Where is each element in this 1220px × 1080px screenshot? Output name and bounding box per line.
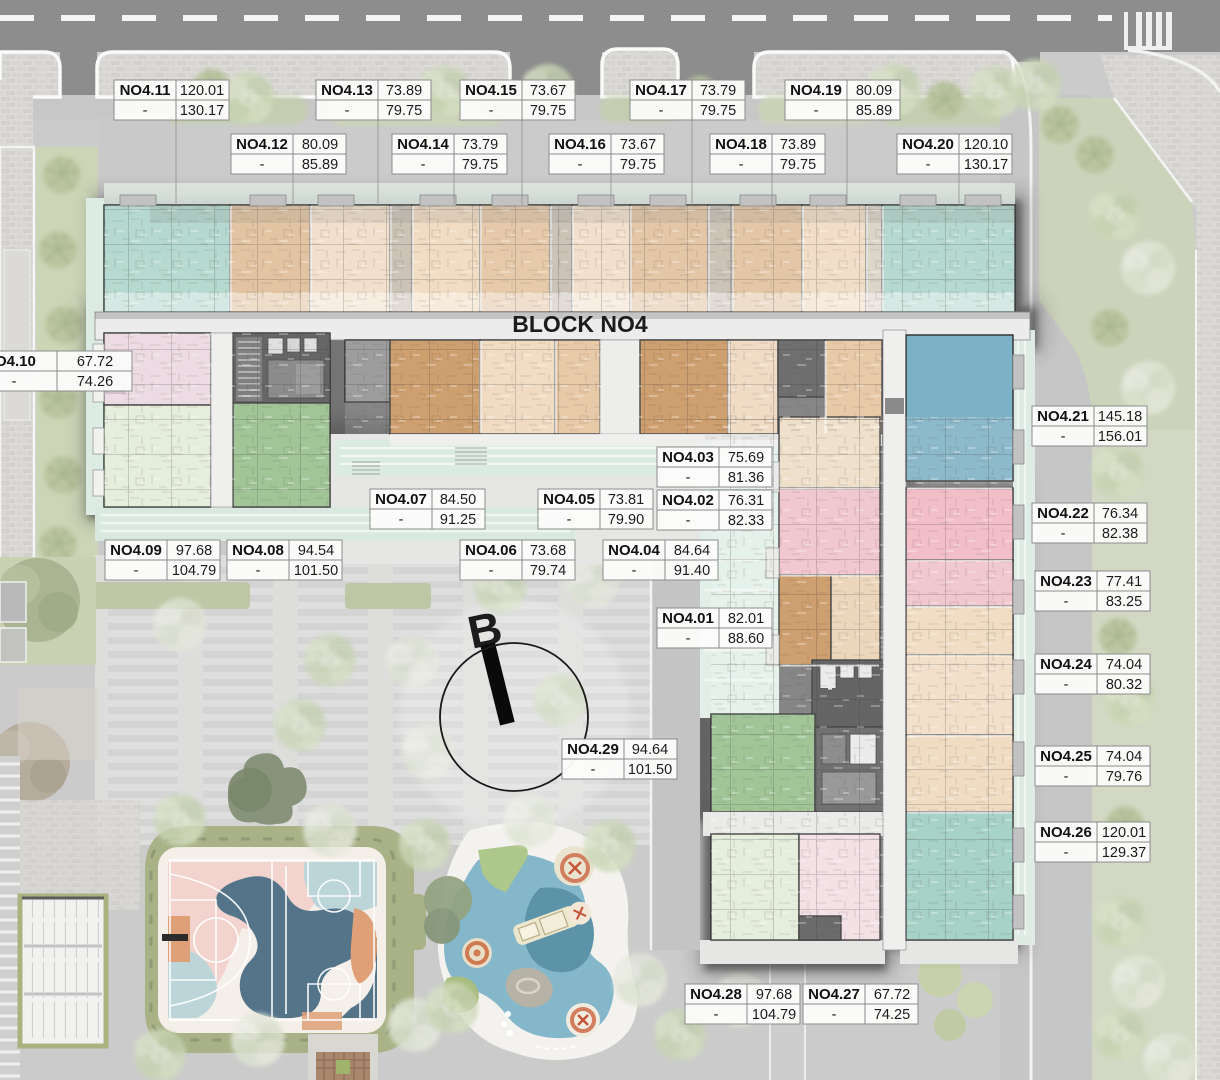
svg-text:-: - [686, 470, 691, 486]
svg-text:NO4.22: NO4.22 [1037, 505, 1089, 522]
svg-text:-: - [686, 631, 691, 647]
svg-text:-: - [489, 563, 494, 579]
svg-text:NO4.18: NO4.18 [715, 136, 767, 153]
svg-text:67.72: 67.72 [874, 987, 910, 1003]
svg-text:-: - [134, 563, 139, 579]
svg-text:NO4.17: NO4.17 [635, 82, 687, 99]
svg-text:NO4.01: NO4.01 [662, 610, 714, 627]
svg-text:-: - [1064, 677, 1069, 693]
svg-text:85.89: 85.89 [302, 157, 338, 173]
svg-text:NO4.08: NO4.08 [232, 542, 284, 559]
svg-text:NO4.11: NO4.11 [120, 82, 171, 99]
svg-text:-: - [1064, 845, 1069, 861]
svg-text:82.01: 82.01 [728, 611, 764, 627]
svg-text:NO4.10: NO4.10 [0, 353, 36, 370]
svg-text:130.17: 130.17 [180, 103, 224, 119]
svg-text:NO4.07: NO4.07 [375, 491, 427, 508]
svg-text:73.89: 73.89 [780, 137, 816, 153]
svg-text:80.09: 80.09 [856, 83, 892, 99]
svg-text:73.67: 73.67 [530, 83, 566, 99]
svg-text:BLOCK NO4: BLOCK NO4 [512, 311, 648, 337]
svg-text:-: - [256, 563, 261, 579]
svg-text:129.37: 129.37 [1102, 845, 1146, 861]
svg-text:83.25: 83.25 [1106, 594, 1142, 610]
svg-text:104.79: 104.79 [752, 1007, 796, 1023]
svg-text:-: - [814, 103, 819, 119]
svg-text:75.69: 75.69 [728, 450, 764, 466]
svg-text:NO4.29: NO4.29 [567, 741, 619, 758]
svg-text:NO4.27: NO4.27 [808, 986, 860, 1003]
svg-text:97.68: 97.68 [176, 543, 212, 559]
svg-text:79.75: 79.75 [462, 157, 498, 173]
svg-text:67.72: 67.72 [77, 354, 113, 370]
svg-text:NO4.23: NO4.23 [1040, 573, 1092, 590]
svg-text:NO4.21: NO4.21 [1037, 408, 1089, 425]
svg-text:-: - [345, 103, 350, 119]
svg-text:120.10: 120.10 [964, 137, 1008, 153]
svg-text:-: - [1061, 429, 1066, 445]
svg-text:74.04: 74.04 [1106, 749, 1142, 765]
svg-text:NO4.24: NO4.24 [1040, 656, 1092, 673]
svg-text:120.01: 120.01 [180, 83, 224, 99]
svg-text:-: - [421, 157, 426, 173]
svg-text:79.74: 79.74 [530, 563, 566, 579]
svg-text:NO4.12: NO4.12 [236, 136, 288, 153]
svg-text:145.18: 145.18 [1098, 409, 1142, 425]
svg-text:130.17: 130.17 [964, 157, 1008, 173]
svg-text:80.09: 80.09 [302, 137, 338, 153]
svg-text:79.75: 79.75 [780, 157, 816, 173]
svg-text:73.79: 73.79 [462, 137, 498, 153]
svg-text:-: - [1061, 526, 1066, 542]
svg-text:-: - [489, 103, 494, 119]
svg-text:84.64: 84.64 [674, 543, 710, 559]
svg-text:82.38: 82.38 [1102, 526, 1138, 542]
svg-text:101.50: 101.50 [294, 563, 338, 579]
svg-text:-: - [714, 1007, 719, 1023]
svg-text:-: - [143, 103, 148, 119]
svg-text:-: - [1064, 594, 1069, 610]
svg-text:-: - [567, 512, 572, 528]
svg-text:NO4.14: NO4.14 [397, 136, 449, 153]
svg-text:79.75: 79.75 [700, 103, 736, 119]
svg-text:81.36: 81.36 [728, 470, 764, 486]
svg-text:85.89: 85.89 [856, 103, 892, 119]
svg-text:-: - [260, 157, 265, 173]
svg-text:79.76: 79.76 [1106, 769, 1142, 785]
svg-text:-: - [578, 157, 583, 173]
svg-text:NO4.15: NO4.15 [465, 82, 517, 99]
svg-text:NO4.13: NO4.13 [321, 82, 373, 99]
svg-text:NO4.05: NO4.05 [543, 491, 595, 508]
svg-text:-: - [12, 374, 17, 390]
svg-text:91.40: 91.40 [674, 563, 710, 579]
svg-text:76.34: 76.34 [1102, 506, 1138, 522]
svg-text:73.81: 73.81 [608, 492, 644, 508]
svg-text:73.68: 73.68 [530, 543, 566, 559]
svg-text:NO4.16: NO4.16 [554, 136, 606, 153]
svg-text:77.41: 77.41 [1106, 574, 1142, 590]
svg-text:NO4.25: NO4.25 [1040, 748, 1092, 765]
svg-text:76.31: 76.31 [728, 493, 764, 509]
svg-text:NO4.26: NO4.26 [1040, 824, 1092, 841]
svg-text:NO4.28: NO4.28 [690, 986, 742, 1003]
svg-text:94.64: 94.64 [632, 742, 668, 758]
svg-text:NO4.03: NO4.03 [662, 449, 714, 466]
svg-text:104.79: 104.79 [172, 563, 216, 579]
svg-text:NO4.04: NO4.04 [608, 542, 660, 559]
svg-text:91.25: 91.25 [440, 512, 476, 528]
svg-text:79.90: 79.90 [608, 512, 644, 528]
svg-text:73.79: 73.79 [700, 83, 736, 99]
svg-text:79.75: 79.75 [530, 103, 566, 119]
svg-text:74.04: 74.04 [1106, 657, 1142, 673]
svg-text:-: - [659, 103, 664, 119]
svg-text:-: - [632, 563, 637, 579]
svg-text:73.67: 73.67 [620, 137, 656, 153]
svg-text:79.75: 79.75 [386, 103, 422, 119]
svg-text:-: - [926, 157, 931, 173]
svg-text:74.26: 74.26 [77, 374, 113, 390]
svg-text:-: - [832, 1007, 837, 1023]
svg-text:-: - [591, 762, 596, 778]
svg-text:97.68: 97.68 [756, 987, 792, 1003]
svg-text:NO4.06: NO4.06 [465, 542, 517, 559]
svg-text:94.54: 94.54 [298, 543, 334, 559]
svg-text:73.89: 73.89 [386, 83, 422, 99]
svg-text:-: - [1064, 769, 1069, 785]
svg-text:NO4.19: NO4.19 [790, 82, 842, 99]
svg-text:88.60: 88.60 [728, 631, 764, 647]
svg-text:101.50: 101.50 [628, 762, 672, 778]
svg-text:120.01: 120.01 [1102, 825, 1146, 841]
svg-text:-: - [686, 513, 691, 529]
svg-text:82.33: 82.33 [728, 513, 764, 529]
svg-text:NO4.09: NO4.09 [110, 542, 162, 559]
svg-text:79.75: 79.75 [620, 157, 656, 173]
svg-text:NO4.20: NO4.20 [902, 136, 954, 153]
svg-text:74.25: 74.25 [874, 1007, 910, 1023]
svg-text:80.32: 80.32 [1106, 677, 1142, 693]
svg-text:-: - [399, 512, 404, 528]
svg-text:NO4.02: NO4.02 [662, 492, 714, 509]
svg-text:-: - [739, 157, 744, 173]
svg-text:156.01: 156.01 [1098, 429, 1142, 445]
svg-text:84.50: 84.50 [440, 492, 476, 508]
